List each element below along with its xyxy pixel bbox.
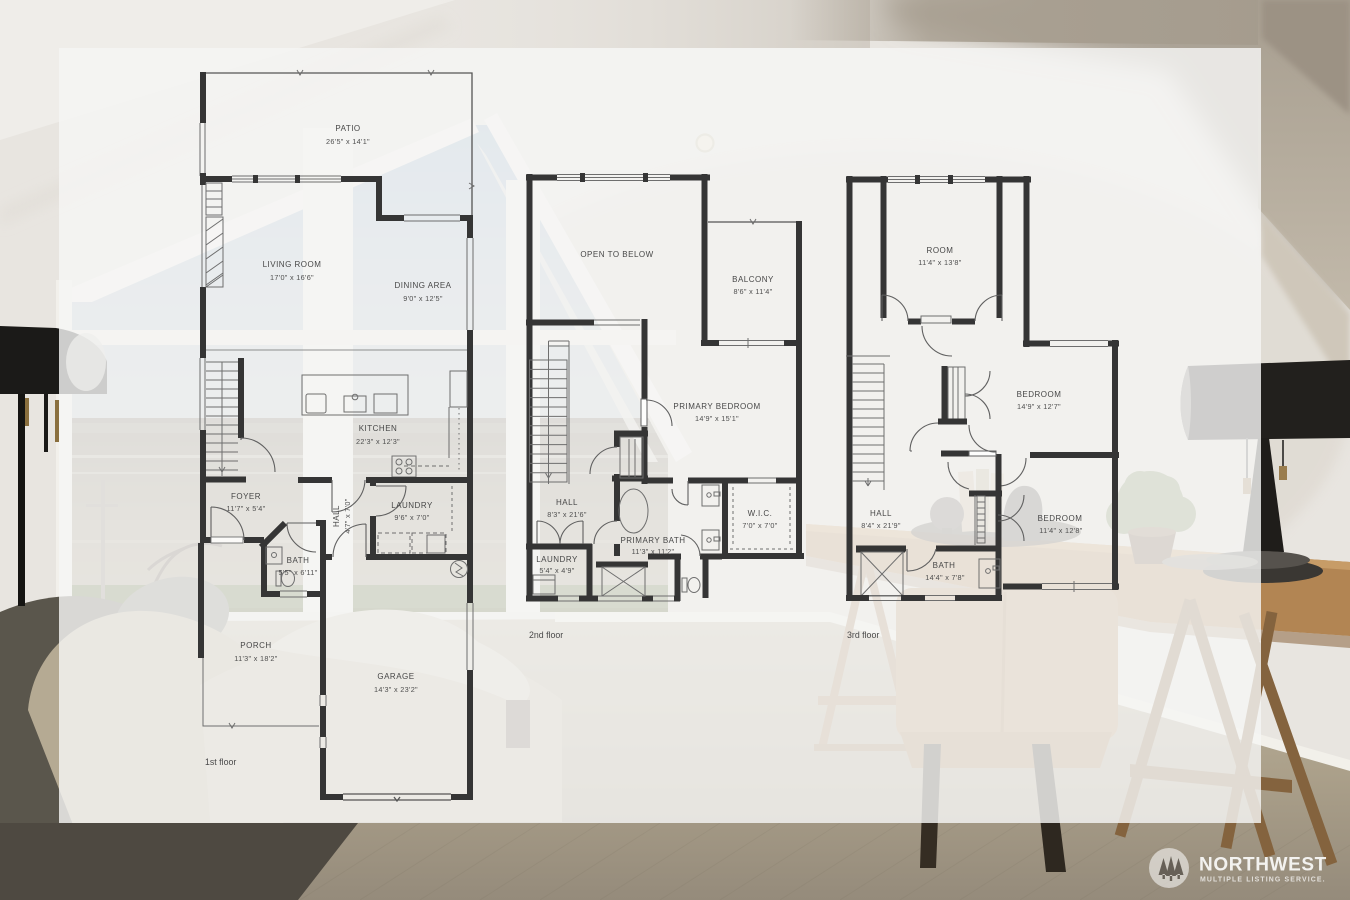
svg-text:MULTIPLE LISTING SERVICE.: MULTIPLE LISTING SERVICE. bbox=[1200, 877, 1326, 884]
svg-text:11'7" x 5'4": 11'7" x 5'4" bbox=[226, 504, 265, 513]
svg-text:8'6" x 11'4": 8'6" x 11'4" bbox=[733, 287, 772, 296]
svg-text:PORCH: PORCH bbox=[240, 641, 271, 650]
svg-text:26'5" x 14'1": 26'5" x 14'1" bbox=[326, 137, 370, 146]
svg-text:9'0" x 12'5": 9'0" x 12'5" bbox=[403, 294, 443, 303]
svg-text:8'4" x 21'9": 8'4" x 21'9" bbox=[861, 521, 901, 530]
svg-text:5'5" x 6'11": 5'5" x 6'11" bbox=[278, 568, 317, 577]
svg-text:14'9" x 15'1": 14'9" x 15'1" bbox=[695, 414, 739, 423]
svg-text:11'3" x 11'2": 11'3" x 11'2" bbox=[632, 547, 675, 556]
svg-text:HALL: HALL bbox=[332, 505, 341, 527]
svg-text:BATH: BATH bbox=[933, 561, 956, 570]
svg-text:14'3" x 23'2": 14'3" x 23'2" bbox=[374, 685, 418, 694]
svg-text:8'3" x 21'6": 8'3" x 21'6" bbox=[547, 510, 587, 519]
svg-text:5'4" x 4'9": 5'4" x 4'9" bbox=[539, 566, 574, 575]
svg-text:9'6" x 7'0": 9'6" x 7'0" bbox=[394, 513, 429, 522]
svg-text:BALCONY: BALCONY bbox=[732, 275, 774, 284]
svg-text:LAUNDRY: LAUNDRY bbox=[391, 501, 433, 510]
svg-text:BEDROOM: BEDROOM bbox=[1038, 514, 1083, 523]
svg-text:2nd floor: 2nd floor bbox=[529, 630, 563, 640]
svg-text:7'0" x 7'0": 7'0" x 7'0" bbox=[742, 521, 777, 530]
svg-text:FOYER: FOYER bbox=[231, 492, 261, 501]
svg-text:14'9" x 12'7": 14'9" x 12'7" bbox=[1017, 402, 1061, 411]
svg-text:22'3" x 12'3": 22'3" x 12'3" bbox=[356, 437, 400, 446]
svg-text:1st floor: 1st floor bbox=[205, 757, 236, 767]
svg-text:11'4" x 13'8": 11'4" x 13'8" bbox=[918, 258, 961, 267]
svg-text:PRIMARY BATH: PRIMARY BATH bbox=[620, 536, 685, 545]
svg-text:KITCHEN: KITCHEN bbox=[359, 424, 398, 433]
svg-text:OPEN TO BELOW: OPEN TO BELOW bbox=[580, 250, 653, 259]
svg-text:BATH: BATH bbox=[287, 556, 310, 565]
svg-text:LIVING ROOM: LIVING ROOM bbox=[263, 260, 322, 269]
svg-text:HALL: HALL bbox=[556, 498, 578, 507]
svg-text:DINING AREA: DINING AREA bbox=[394, 281, 451, 290]
svg-text:NORTHWEST: NORTHWEST bbox=[1199, 855, 1327, 876]
svg-text:17'0" x 16'6": 17'0" x 16'6" bbox=[270, 273, 314, 282]
svg-text:W.I.C.: W.I.C. bbox=[748, 509, 773, 518]
svg-text:GARAGE: GARAGE bbox=[377, 672, 414, 681]
svg-text:BEDROOM: BEDROOM bbox=[1017, 390, 1062, 399]
svg-text:HALL: HALL bbox=[870, 509, 892, 518]
svg-text:PRIMARY BEDROOM: PRIMARY BEDROOM bbox=[673, 402, 760, 411]
svg-text:11'3" x 18'2": 11'3" x 18'2" bbox=[234, 654, 277, 663]
svg-text:11'4" x 12'8": 11'4" x 12'8" bbox=[1039, 526, 1082, 535]
svg-text:14'4" x 7'8": 14'4" x 7'8" bbox=[925, 573, 965, 582]
svg-text:PATIO: PATIO bbox=[335, 124, 360, 133]
svg-text:ROOM: ROOM bbox=[927, 246, 954, 255]
svg-text:LAUNDRY: LAUNDRY bbox=[536, 555, 578, 564]
svg-text:3rd floor: 3rd floor bbox=[847, 630, 879, 640]
svg-text:4'7" x 7'0": 4'7" x 7'0" bbox=[343, 498, 352, 533]
